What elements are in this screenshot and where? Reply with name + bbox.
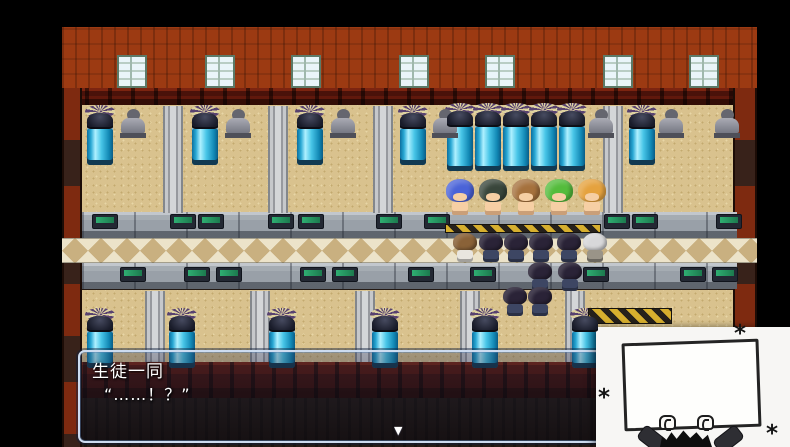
student-body [485,201,501,215]
vat-dome [192,113,218,129]
vat-dome [531,111,557,127]
npc-sprite[interactable] [556,233,582,264]
npc-sprite[interactable] [478,233,504,264]
npc-body [483,250,499,262]
vat-dome [472,316,498,332]
vat-dome [87,113,113,129]
vat-dome [559,111,585,127]
npc-body [561,250,577,262]
vat-dome [475,111,501,127]
npc-hair [529,233,553,251]
right-hand [697,415,714,430]
asterisk-bottom-right: * [766,421,778,447]
student-hair [446,179,474,202]
npc-hair [558,262,582,280]
asterisk-left: * [598,385,610,411]
student-body [584,201,600,215]
npc-body [532,304,548,316]
blank-sign [622,339,762,432]
npc-sprite[interactable] [527,287,553,318]
npc-hair [479,233,503,251]
student-sprite[interactable] [511,179,541,227]
npc-sprite[interactable] [582,233,608,264]
student-body [518,201,534,215]
dialog-text: “……！？” [104,381,191,405]
npc-sprite[interactable] [502,287,528,318]
student-hair [578,179,606,202]
npc-hair [453,233,477,251]
npc-body [507,304,523,316]
student-sprite[interactable] [478,179,508,227]
vat-dome [572,316,598,332]
vat-dome [297,113,323,129]
student-sprite[interactable] [445,179,475,227]
student-body [551,201,567,215]
student-sprite[interactable] [577,179,607,227]
npc-body [533,250,549,262]
vat-dome [87,316,113,332]
npc-sprite[interactable] [452,233,478,264]
npc-hair [557,233,581,251]
student-sprite[interactable] [544,179,574,227]
student-body [452,201,468,215]
npc-body [457,250,473,262]
sign-overlay: * * * [596,327,790,447]
npc-hair [528,287,552,305]
npc-body [587,250,603,262]
continue-arrow-icon[interactable]: ▼ [394,424,402,437]
npc-sprite[interactable] [503,233,529,264]
game-window: 生徒一同 “……！？” ▼ * * * [0,0,790,447]
npc-hair [583,233,607,251]
npc-hair [528,262,552,280]
student-hair [512,179,540,202]
npc-body [562,279,578,291]
student-hair [479,179,507,202]
vat-dome [169,316,195,332]
vat-dome [400,113,426,129]
left-hand [659,415,676,430]
student-hair [545,179,573,202]
npc-sprite[interactable] [528,233,554,264]
vat-dome [372,316,398,332]
character-hair [660,429,712,447]
vat-dome [629,113,655,129]
npc-hair [503,287,527,305]
npc-body [508,250,524,262]
npc-sprite[interactable] [557,262,583,293]
npc-hair [504,233,528,251]
vat-dome [269,316,295,332]
vat-dome [503,111,529,127]
dialog-speaker: 生徒一同 [92,357,164,382]
vat-dome [447,111,473,127]
